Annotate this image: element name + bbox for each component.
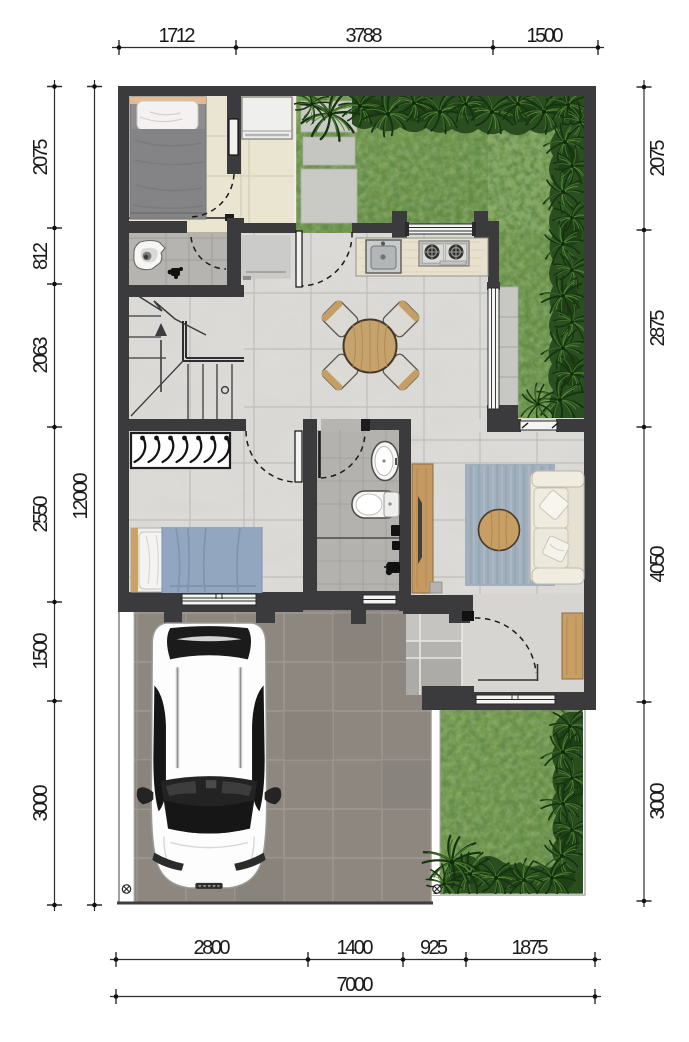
svg-text:2550: 2550 [30,496,52,533]
svg-text:812: 812 [30,242,52,270]
svg-text:3000: 3000 [647,783,669,820]
svg-text:2063: 2063 [30,337,52,374]
svg-text:3788: 3788 [346,25,383,47]
svg-text:1712: 1712 [159,25,196,47]
svg-text:1400: 1400 [337,937,374,959]
svg-text:1875: 1875 [512,937,549,959]
svg-text:2875: 2875 [647,310,669,347]
svg-text:2075: 2075 [30,139,52,176]
svg-text:12000: 12000 [70,473,92,520]
svg-text:2075: 2075 [647,140,669,177]
svg-text:4050: 4050 [647,546,669,583]
svg-text:3000: 3000 [30,785,52,822]
svg-text:1500: 1500 [30,633,52,670]
svg-text:925: 925 [420,937,448,959]
svg-text:7000: 7000 [337,974,374,996]
svg-text:2800: 2800 [194,937,231,959]
svg-text:1500: 1500 [527,25,564,47]
